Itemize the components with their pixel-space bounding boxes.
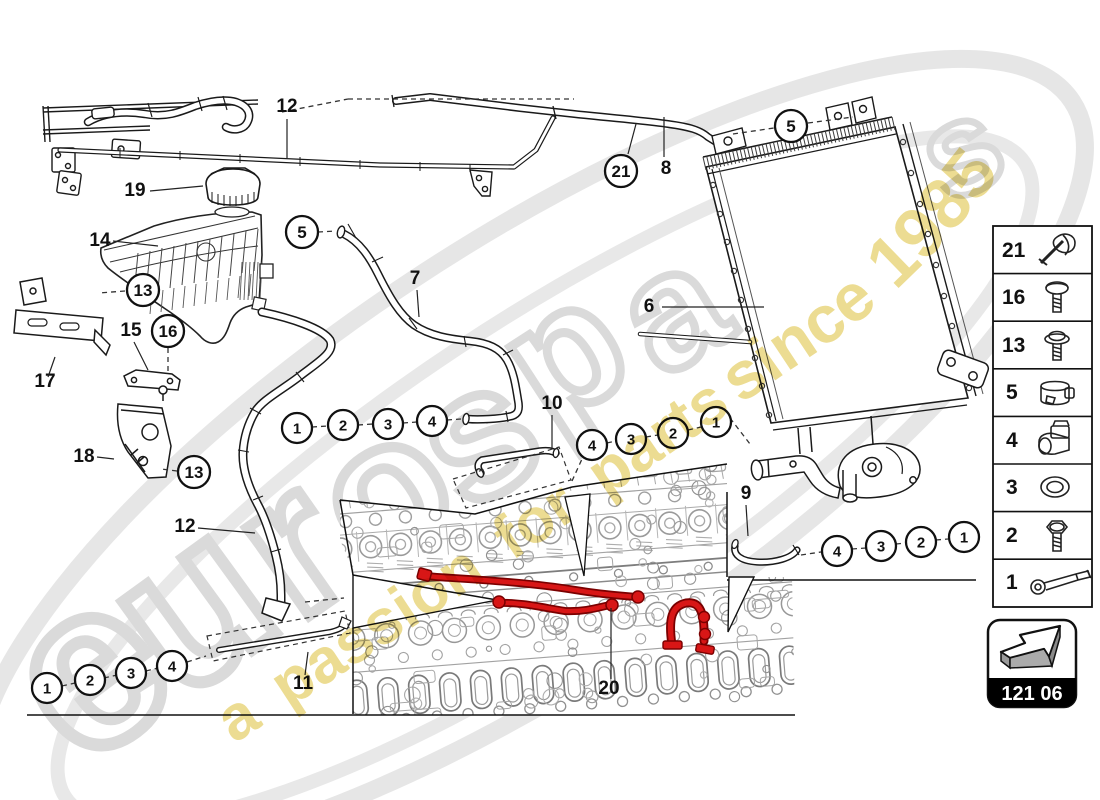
svg-text:16: 16 <box>159 322 178 341</box>
svg-text:3: 3 <box>1006 476 1018 499</box>
svg-text:8: 8 <box>661 158 672 179</box>
svg-text:1: 1 <box>293 420 301 437</box>
svg-text:3: 3 <box>384 416 392 433</box>
svg-text:10: 10 <box>541 393 562 414</box>
svg-text:3: 3 <box>877 538 885 555</box>
svg-text:21: 21 <box>612 162 631 181</box>
svg-text:5: 5 <box>297 223 306 242</box>
svg-text:12: 12 <box>174 516 195 537</box>
svg-text:6: 6 <box>644 296 655 317</box>
svg-text:1: 1 <box>960 529 968 546</box>
svg-text:18: 18 <box>73 446 94 467</box>
svg-text:2: 2 <box>339 417 347 434</box>
svg-text:7: 7 <box>410 268 421 289</box>
svg-text:2: 2 <box>86 672 94 689</box>
svg-text:13: 13 <box>1002 334 1025 357</box>
svg-text:4: 4 <box>1006 429 1018 452</box>
svg-text:20: 20 <box>598 678 619 699</box>
svg-text:19: 19 <box>124 180 145 201</box>
svg-text:13: 13 <box>134 281 153 300</box>
svg-text:3: 3 <box>127 665 135 682</box>
svg-text:2: 2 <box>1006 524 1018 547</box>
svg-text:4: 4 <box>168 658 177 675</box>
svg-text:2: 2 <box>917 534 925 551</box>
svg-text:13: 13 <box>185 463 204 482</box>
svg-text:21: 21 <box>1002 239 1026 262</box>
svg-text:14: 14 <box>89 230 111 251</box>
svg-text:17: 17 <box>34 371 55 392</box>
svg-text:121 06: 121 06 <box>1001 683 1062 705</box>
svg-text:12: 12 <box>276 96 297 117</box>
svg-text:9: 9 <box>741 483 752 504</box>
svg-text:4: 4 <box>428 413 437 430</box>
svg-text:4: 4 <box>833 543 842 560</box>
svg-text:1: 1 <box>43 680 51 697</box>
svg-text:15: 15 <box>120 320 142 341</box>
svg-text:1: 1 <box>1006 571 1018 594</box>
svg-text:5: 5 <box>1006 381 1018 404</box>
svg-text:16: 16 <box>1002 286 1025 309</box>
svg-text:5: 5 <box>786 117 795 136</box>
